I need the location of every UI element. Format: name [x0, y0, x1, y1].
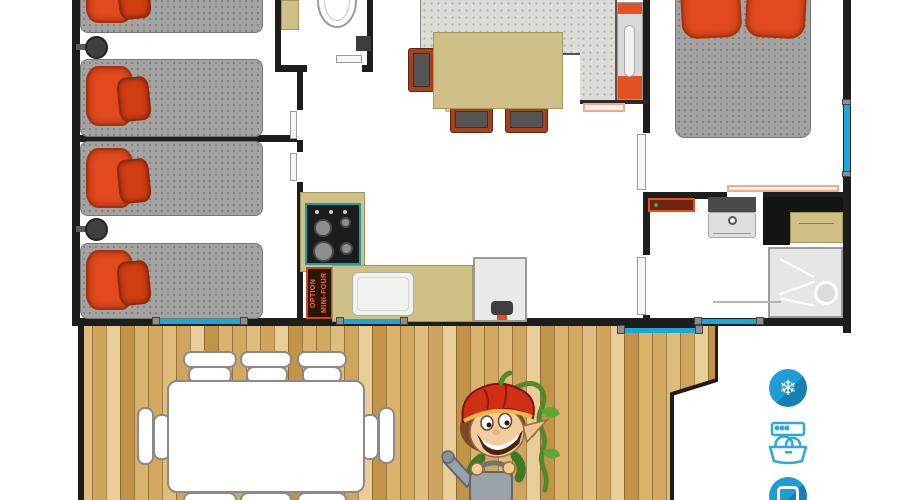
bath-mat-line: [713, 301, 781, 303]
floorplan-canvas: OPTION MINI-FOUR: [0, 0, 900, 500]
door-opening-bedroom-2: [297, 152, 303, 182]
window-cap: [152, 317, 160, 325]
window-cap: [240, 317, 248, 325]
pillow: [116, 75, 152, 122]
shower: [768, 247, 843, 318]
mascot-illustration: [437, 366, 567, 500]
deck-chair-back: [297, 351, 347, 368]
wc-cistern: [356, 36, 371, 51]
towel-radiator: [648, 198, 695, 212]
deck-chair-back: [297, 492, 347, 500]
kitchen-sink: [352, 272, 414, 316]
window-marker: [844, 104, 850, 172]
window-cap: [694, 317, 702, 325]
air-conditioning-icon: ❄: [769, 369, 807, 407]
door-leaf-bathroom: [637, 257, 646, 315]
cooktop: [305, 203, 361, 265]
washbasin-splashback: [708, 197, 756, 212]
vanity-cabinet: [790, 212, 843, 243]
kitchen-worktop-leg: [580, 0, 617, 101]
window-cap: [756, 317, 764, 325]
wc-cabinet: [281, 0, 299, 30]
oven-option-box: OPTION MINI-FOUR: [306, 267, 333, 319]
snowflake-icon: ❄: [769, 369, 807, 407]
window-cap: [617, 325, 625, 334]
deck-chair-back: [240, 351, 292, 368]
door-leaf-bedroom-2: [290, 153, 297, 181]
deck-chair-back: [378, 407, 395, 464]
dishwasher-icon: [768, 420, 808, 465]
door-leaf-master-bedroom: [637, 134, 646, 190]
window-cap: [842, 99, 851, 105]
radiator: [727, 185, 839, 192]
door-opening-bedroom-1: [297, 110, 303, 140]
window-marker: [158, 319, 242, 324]
deck-chair-back: [137, 407, 154, 465]
bathroom-corner-unit: [763, 197, 790, 245]
window-marker: [342, 319, 402, 324]
dining-chair: [450, 106, 493, 133]
dining-chair: [408, 48, 435, 92]
dining-chair: [505, 106, 548, 133]
oven-option-label: OPTION MINI-FOUR: [308, 269, 331, 317]
door-leaf-bedroom-1: [290, 111, 297, 139]
door-leaf-wc: [336, 55, 362, 63]
window-cap: [400, 317, 408, 325]
sliding-bay-door: [623, 328, 697, 333]
washbasin: [708, 212, 756, 238]
window-cap: [695, 325, 703, 334]
wall-lamp: [85, 218, 108, 241]
pillow: [116, 259, 152, 306]
sofa: [617, 2, 643, 100]
pillow: [680, 0, 743, 40]
pillow: [116, 157, 152, 204]
pillow: [745, 0, 808, 40]
radiator: [583, 103, 625, 112]
window-marker: [700, 319, 758, 324]
fridge: [473, 257, 527, 322]
deck-chair-back: [240, 492, 292, 500]
door-opening-wc: [307, 65, 362, 72]
tv-icon: [769, 477, 807, 500]
deck-chair-back: [183, 351, 237, 368]
wall-lamp: [85, 36, 108, 59]
window-cap: [842, 171, 851, 177]
tv-screen-glyph: [777, 486, 799, 500]
window-cap: [336, 317, 344, 325]
dining-table: [433, 32, 563, 109]
deck-dining-table: [167, 380, 365, 493]
wall-living-master: [643, 0, 650, 133]
deck-chair-back: [183, 492, 237, 500]
bathroom-shelf: [790, 197, 843, 212]
toilet: [317, 0, 357, 28]
